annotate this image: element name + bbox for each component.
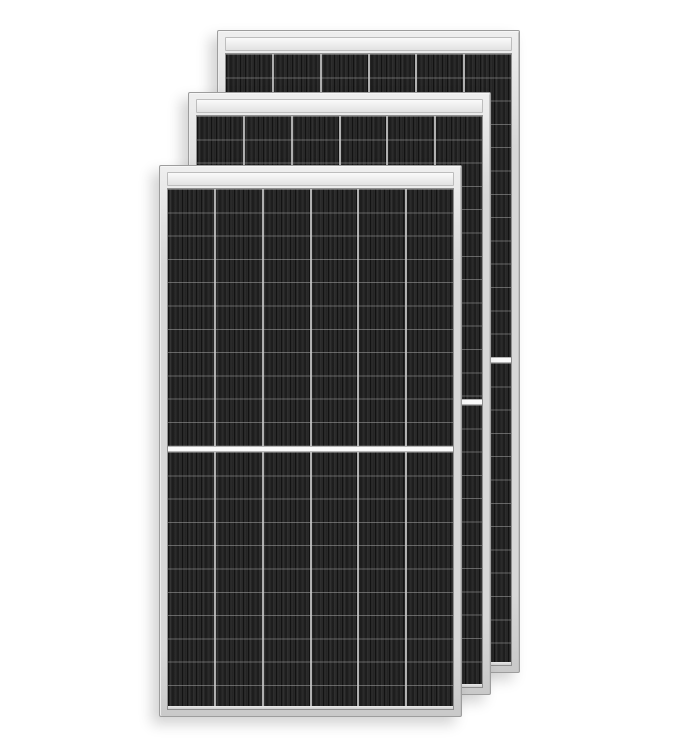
solar-panel-front bbox=[159, 165, 462, 717]
panel-top-rail bbox=[225, 37, 512, 51]
panel-top-rail bbox=[196, 99, 483, 113]
panel-bottom-strip bbox=[168, 706, 453, 709]
product-image-stage bbox=[0, 0, 684, 748]
panel-top-rail bbox=[167, 172, 454, 186]
center-divider-band bbox=[168, 446, 453, 452]
panel-cell-area bbox=[167, 188, 454, 710]
